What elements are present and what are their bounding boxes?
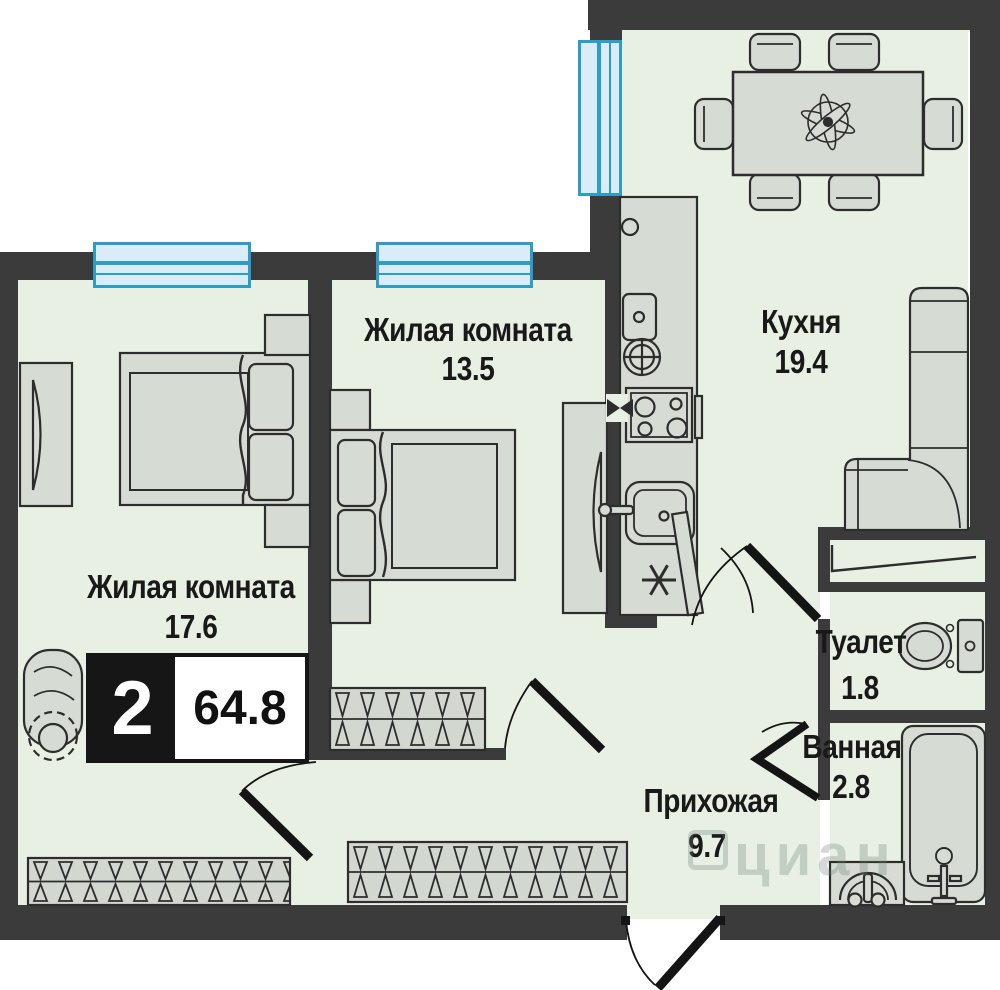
- dining-chair: [829, 174, 879, 210]
- nightstand: [265, 315, 310, 355]
- pillow: [338, 510, 375, 576]
- toilet-fixture: [899, 620, 983, 672]
- kitchen-label: Кухня: [761, 303, 841, 341]
- nightstand: [330, 580, 370, 623]
- toilet-area: 1.8: [841, 669, 879, 707]
- nightstand: [265, 505, 310, 547]
- dining-chair: [829, 34, 879, 70]
- tv-stand: [20, 363, 72, 506]
- bathroom-area: 2.8: [832, 768, 870, 806]
- badge-total-area: 64.8: [175, 657, 305, 759]
- dining-chair: [924, 99, 962, 149]
- wardrobe-hallway: [348, 842, 627, 902]
- bathroom-label: Ванная: [802, 728, 901, 766]
- pillow: [249, 364, 293, 430]
- dining-chair: [750, 34, 800, 70]
- room2-label: Жилая комната: [364, 311, 572, 349]
- door-entrance: [621, 916, 725, 988]
- room1-label: Жилая комната: [87, 568, 295, 606]
- toilet-label: Туалет: [816, 623, 907, 661]
- sofa: [845, 288, 968, 530]
- round-sink: [624, 339, 660, 375]
- nightstand: [330, 390, 370, 430]
- hallway-label: Прихожая: [643, 782, 778, 820]
- floor-plan: Жилая комната 17.6 Жилая комната 13.5 Ку…: [0, 0, 1000, 990]
- watermark-logo: [688, 830, 728, 870]
- room2-area: 13.5: [442, 350, 495, 388]
- wardrobe-room1: [28, 858, 290, 905]
- dining-table: [733, 72, 923, 175]
- dining-chair: [750, 174, 800, 210]
- wardrobe-room2: [330, 688, 485, 750]
- bed-room1: [120, 353, 310, 505]
- door-toilet: [692, 546, 818, 625]
- kitchen-area: 19.4: [775, 343, 828, 381]
- bed-room2: [330, 430, 515, 580]
- room1-area: 17.6: [165, 608, 218, 646]
- vent-niche: [832, 545, 976, 571]
- armchair-plant: [24, 650, 82, 760]
- cutting-board: [623, 294, 656, 340]
- dining-chair: [695, 99, 733, 149]
- door-room2: [505, 681, 602, 750]
- pillow: [338, 440, 375, 506]
- pillow: [249, 434, 293, 500]
- badge-room-count: 2: [90, 657, 175, 759]
- apartment-badge: 2 64.8: [86, 653, 309, 763]
- door-room1: [242, 762, 316, 858]
- watermark-brand: циан: [734, 822, 897, 889]
- bathtub: [902, 726, 985, 904]
